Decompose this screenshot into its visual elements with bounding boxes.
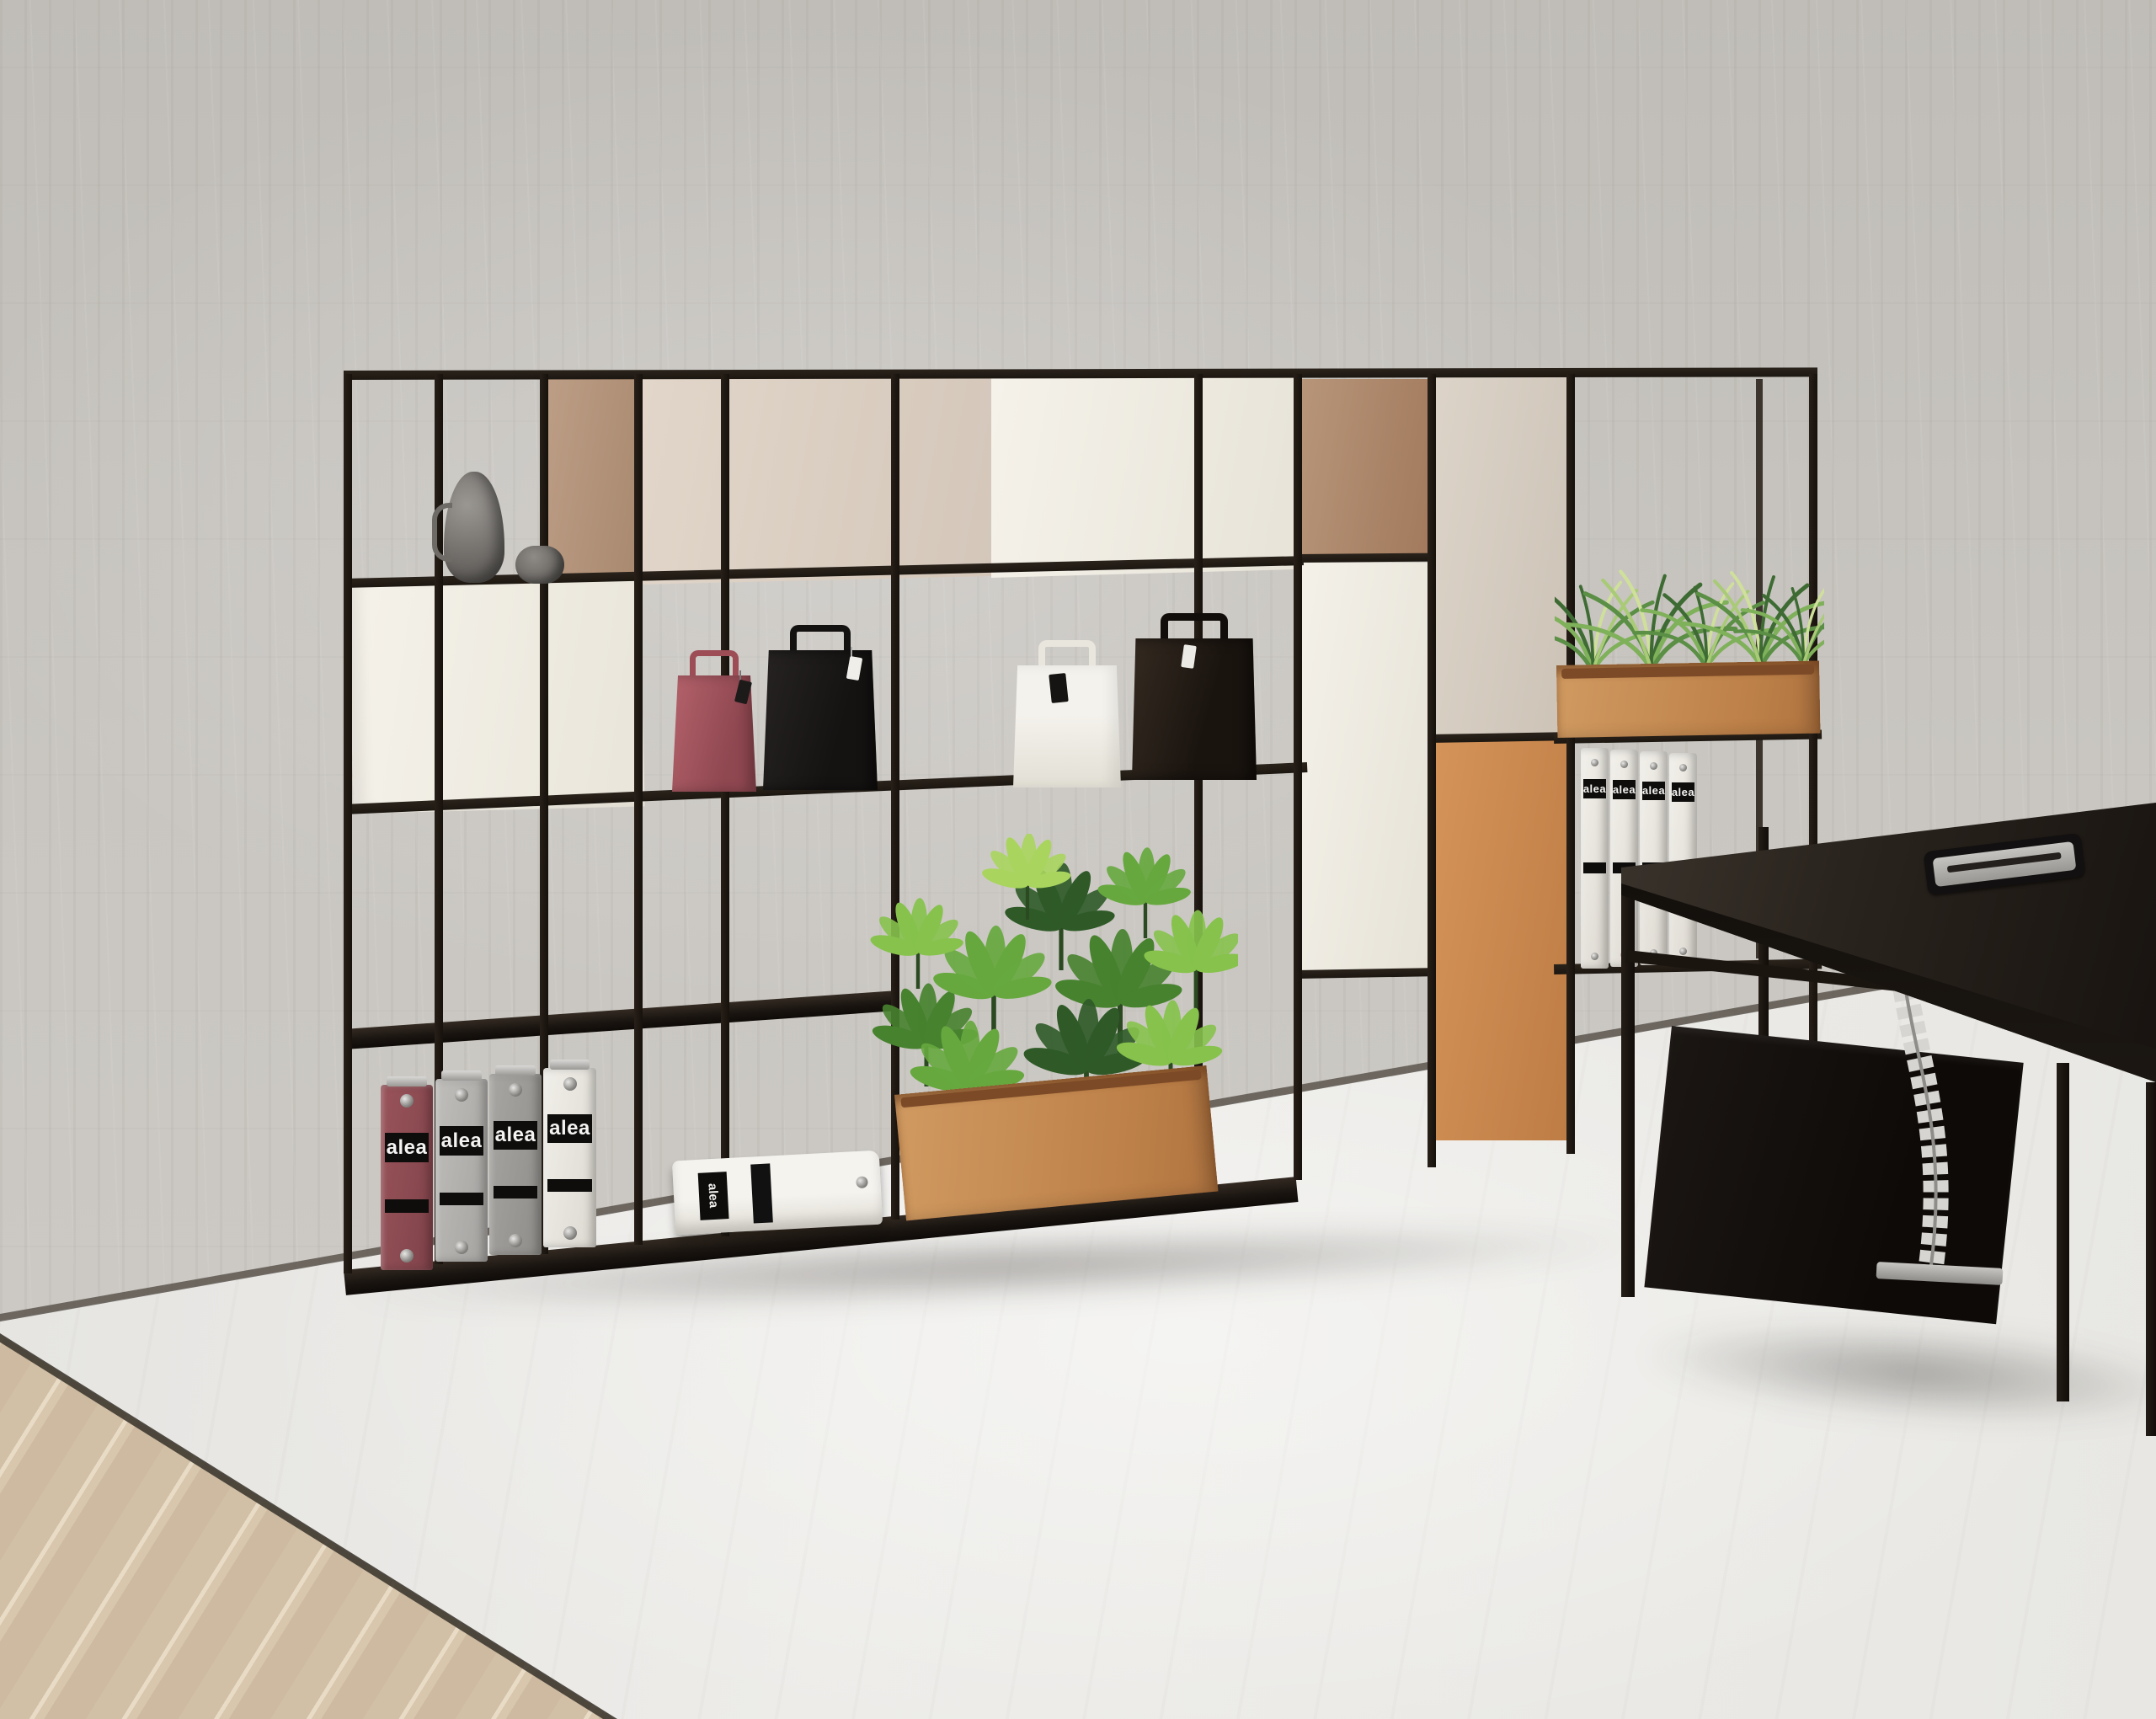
frame-post [1428,374,1436,1167]
binder-grommet [563,1077,577,1091]
binder-label: alea [440,1126,483,1156]
white-paper-bag [1013,665,1121,787]
brown-leather-bag [1132,638,1257,780]
binder-mechanism [550,1060,590,1070]
desk-far-right-leg [2146,1082,2156,1436]
frame-post [1566,374,1575,1154]
binder-grommet [400,1249,414,1263]
frame-post [634,374,643,1245]
spider-plant-trough [1556,661,1820,738]
lying-binder: alea [672,1150,883,1236]
desk-right-leg [2057,1063,2069,1401]
binder-label: alea [1672,782,1695,802]
orange-cabinet [1431,739,1572,1140]
beige-cabinet-door [638,377,993,586]
tan-back-panel-2 [1302,379,1430,558]
desk-front-left-leg [1621,874,1635,1297]
ring-binder: alea [435,1079,488,1262]
binder-stripe [494,1186,537,1198]
binder-stripe [1583,862,1607,873]
ring-binder: alea [1669,753,1697,964]
binder-label: alea [1642,782,1666,801]
binder-mechanism [441,1070,481,1081]
binder-grommet [1591,953,1598,960]
binder-stripe [547,1179,592,1192]
tan-cube-bottom-rail [1297,553,1435,563]
binder-grommet [1679,764,1687,771]
binder-grommet [856,1176,868,1188]
frame-post [1294,374,1302,1180]
ring-binder: alea [543,1068,596,1247]
binder-mechanism [495,1065,535,1076]
binder-grommet [509,1234,522,1247]
red-paper-bag [672,675,756,792]
white-cabinet-door [991,377,1296,579]
bag-tag [1049,673,1068,703]
frame-post [1809,374,1817,1129]
black-paper-bag [763,650,878,790]
binder-mechanism [387,1076,426,1086]
binder-grommet [1591,759,1598,766]
binder-stripe [751,1163,773,1223]
ring-binder: alea [489,1074,542,1255]
beige-tall-cabinet [1431,377,1572,739]
binder-grommet [455,1241,468,1254]
office-scene: alea alea alea alea [0,0,2156,1719]
binder-label: alea [697,1172,728,1220]
binder-label: alea [494,1121,537,1150]
binder-grommet [455,1088,468,1102]
ring-binder: alea [1640,751,1668,965]
ring-binder: alea [1581,748,1609,969]
binder-grommet [563,1226,577,1240]
spider-plant [1555,536,1824,679]
planter-soil [1561,665,1814,679]
binder-stripe [385,1199,429,1212]
binder-grommet [1650,762,1657,770]
ring-binder: alea [381,1085,433,1270]
binder-label: alea [547,1114,592,1143]
binder-grommet [1620,761,1628,768]
white-tall-cabinet [1299,563,1432,974]
white-cabinet-left [348,573,645,814]
binder-stripe [440,1193,483,1205]
binder-label: alea [1613,780,1636,799]
bag-body [1013,665,1121,787]
pewter-bowl [515,546,564,584]
binder-label: alea [1583,779,1607,799]
frame-post [721,374,729,1236]
binder-grommet [1679,948,1687,955]
bag-body [763,650,878,790]
binder-grommet [509,1083,522,1097]
frame-post [344,374,352,1273]
binder-label: alea [385,1133,429,1162]
binder-grommet [400,1094,414,1108]
